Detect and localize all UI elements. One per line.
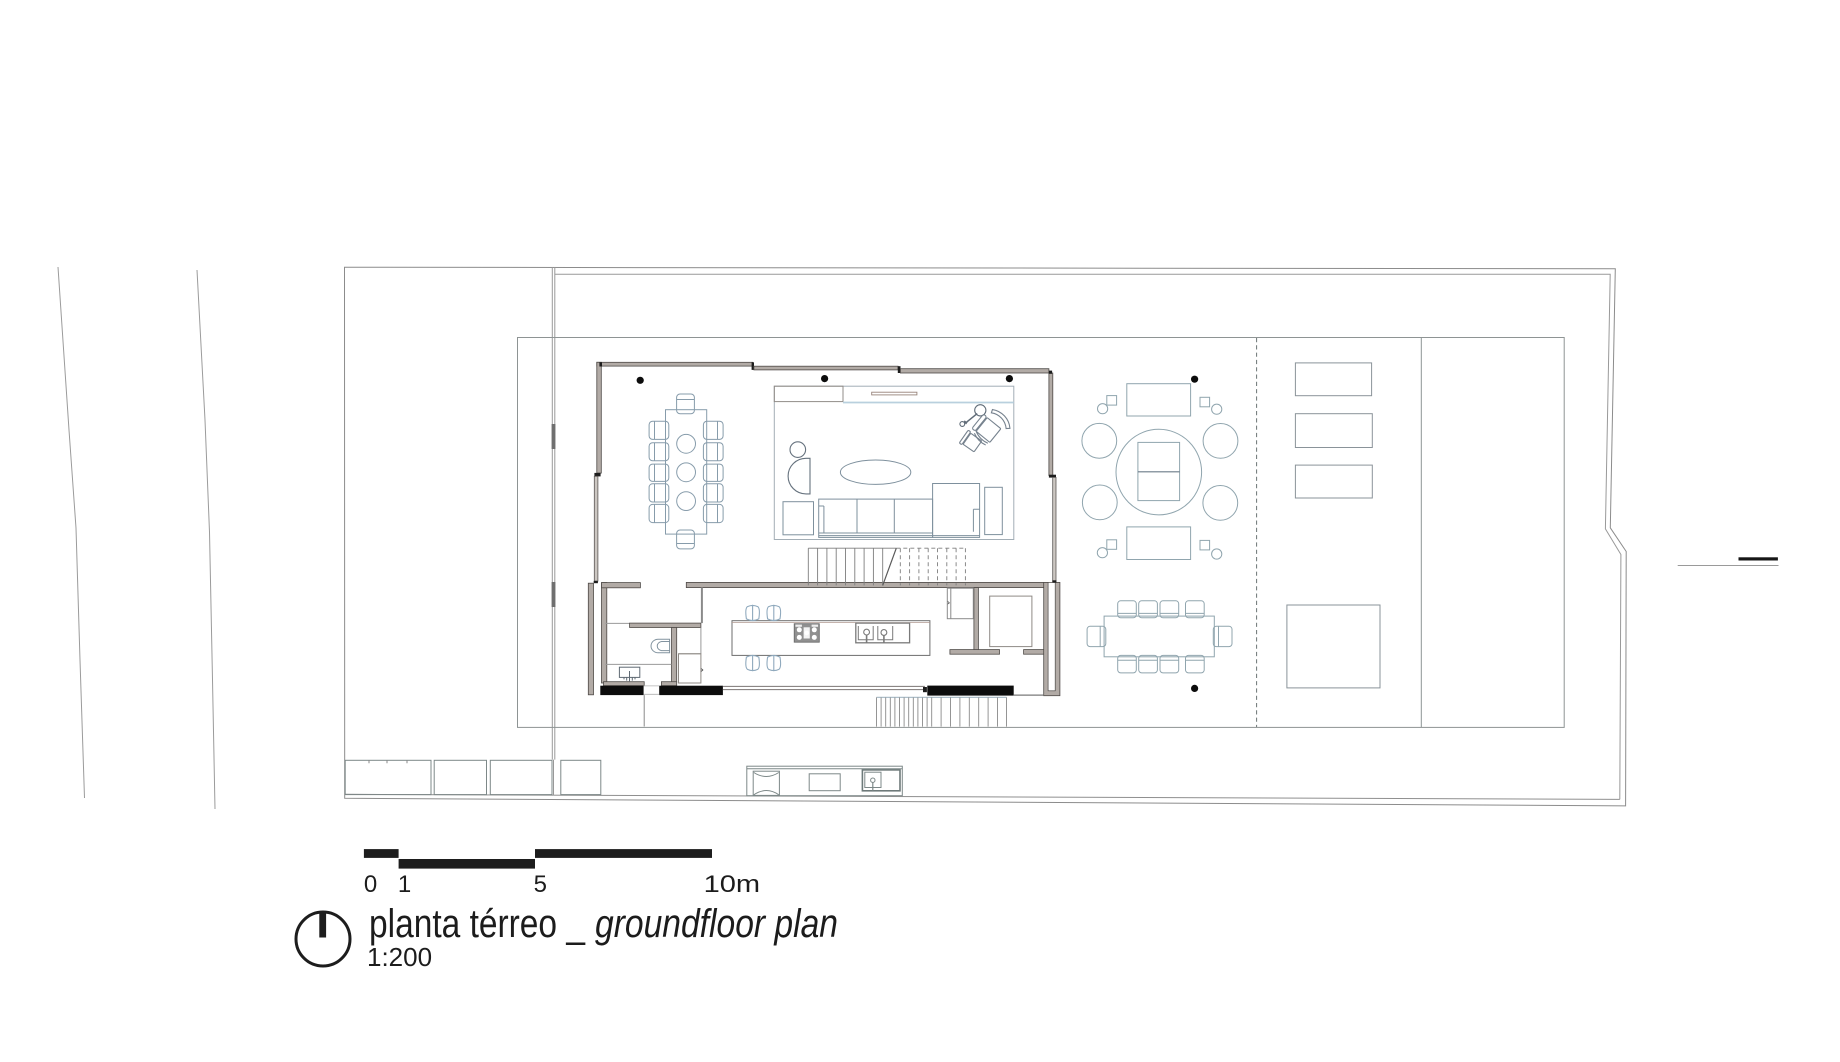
- svg-text:1:200: 1:200: [367, 942, 432, 972]
- svg-text:groundfloor plan: groundfloor plan: [595, 902, 838, 946]
- svg-text:0: 0: [364, 871, 377, 898]
- svg-text:5: 5: [534, 871, 547, 898]
- svg-text:1: 1: [398, 871, 411, 898]
- svg-text:10m: 10m: [704, 871, 761, 898]
- svg-text:planta térreo _: planta térreo _: [369, 902, 586, 946]
